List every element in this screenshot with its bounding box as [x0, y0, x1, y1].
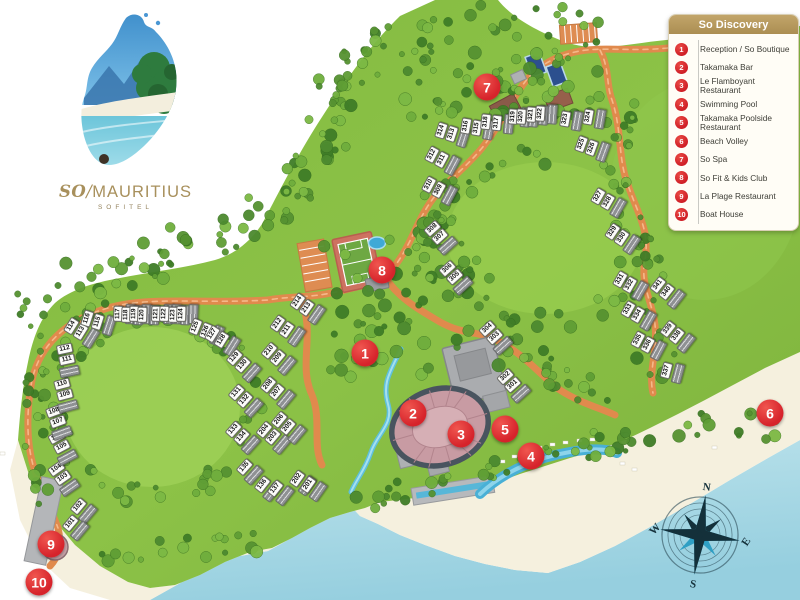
legend-item-label: La Plage Restaurant [700, 192, 776, 201]
logo-wordmark: SO/MAURITIUS SOFITEL [48, 182, 203, 211]
hotel-logo: SO/MAURITIUS SOFITEL [48, 10, 203, 220]
legend-item-number: 4 [675, 98, 688, 111]
legend-divider [698, 40, 699, 224]
legend-title: So Discovery [669, 15, 798, 34]
legend-item-label: Boat House [700, 210, 743, 219]
resort-map-page: N E S W 10210110410310610510810711010911… [0, 0, 800, 600]
legend-item-9[interactable]: 9La Plage Restaurant [675, 187, 794, 205]
legend-item-number: 5 [675, 116, 688, 129]
legend-panel: So Discovery 1Reception / So Boutique2Ta… [668, 14, 799, 231]
brand-subtitle: SOFITEL [48, 204, 203, 211]
legend-item-number: 9 [675, 190, 688, 203]
legend-item-label: Takamaka Bar [700, 63, 753, 72]
legend-item-number: 3 [675, 79, 688, 92]
legend-item-label: Swimming Pool [700, 100, 757, 109]
brand-name: MAURITIUS [92, 183, 192, 201]
map-marker-3[interactable]: 3 [448, 421, 475, 448]
legend-item-6[interactable]: 6Beach Volley [675, 132, 794, 150]
legend-item-label: Le Flamboyant Restaurant [700, 77, 794, 94]
map-marker-7[interactable]: 7 [474, 74, 501, 101]
legend-item-number: 7 [675, 153, 688, 166]
legend-item-1[interactable]: 1Reception / So Boutique [675, 40, 794, 58]
legend-item-number: 1 [675, 43, 688, 56]
mauritius-island-art [48, 10, 203, 182]
legend-item-number: 10 [675, 208, 688, 221]
legend-item-7[interactable]: 7So Spa [675, 150, 794, 168]
legend-item-2[interactable]: 2Takamaka Bar [675, 58, 794, 76]
legend-item-number: 2 [675, 61, 688, 74]
legend-item-label: So Fit & Kids Club [700, 174, 767, 183]
map-marker-1[interactable]: 1 [352, 340, 379, 367]
map-marker-9[interactable]: 9 [38, 531, 65, 558]
map-marker-2[interactable]: 2 [400, 400, 427, 427]
legend-item-4[interactable]: 4Swimming Pool [675, 95, 794, 113]
legend-item-10[interactable]: 10Boat House [675, 206, 794, 224]
legend-item-label: So Spa [700, 155, 727, 164]
map-marker-10[interactable]: 10 [26, 569, 53, 596]
legend-item-label: Reception / So Boutique [700, 45, 789, 54]
legend-item-label: Beach Volley [700, 137, 748, 146]
brand-so: SO [59, 182, 86, 201]
legend-item-label: Takamaka Poolside Restaurant [700, 114, 794, 131]
legend-item-number: 6 [675, 135, 688, 148]
map-marker-8[interactable]: 8 [369, 257, 396, 284]
map-marker-4[interactable]: 4 [518, 443, 545, 470]
map-marker-5[interactable]: 5 [492, 416, 519, 443]
legend-item-5[interactable]: 5Takamaka Poolside Restaurant [675, 114, 794, 132]
map-marker-6[interactable]: 6 [757, 400, 784, 427]
legend-items: 1Reception / So Boutique2Takamaka Bar3Le… [669, 34, 798, 230]
legend-item-3[interactable]: 3Le Flamboyant Restaurant [675, 77, 794, 95]
legend-item-8[interactable]: 8So Fit & Kids Club [675, 169, 794, 187]
island-dot [99, 154, 109, 164]
legend-item-number: 8 [675, 171, 688, 184]
